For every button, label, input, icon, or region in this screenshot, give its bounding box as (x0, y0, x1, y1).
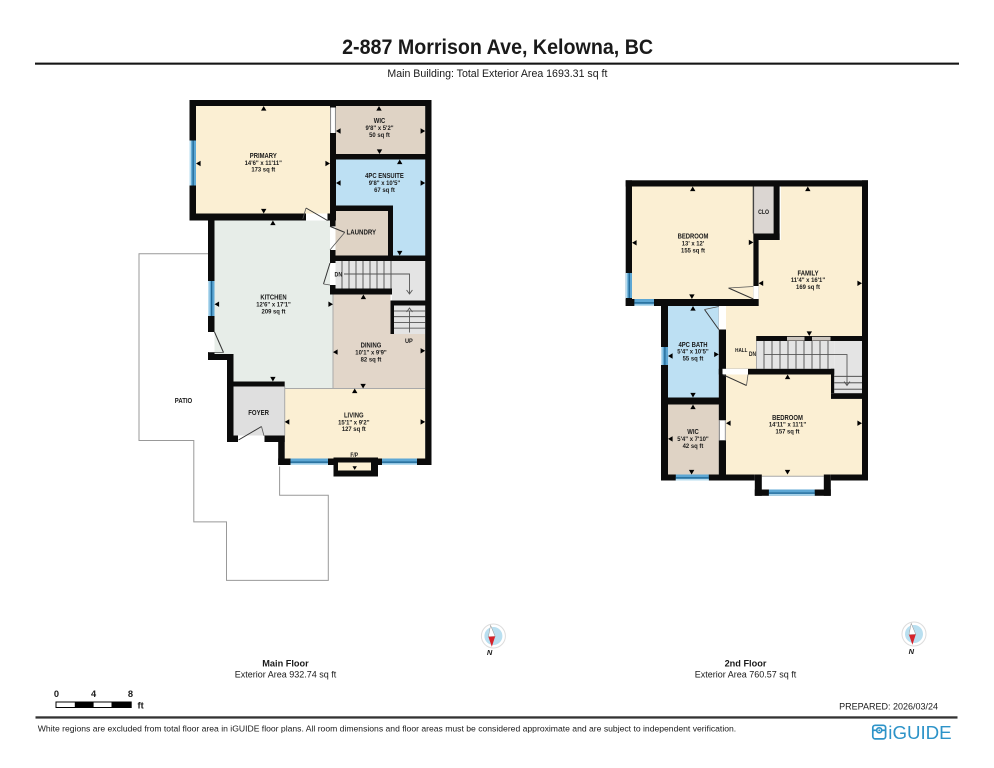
svg-text:169 sq ft: 169 sq ft (796, 284, 821, 291)
svg-text:127 sq ft: 127 sq ft (342, 426, 367, 433)
svg-text:Main Floor: Main Floor (262, 659, 309, 669)
svg-text:LIVING: LIVING (344, 410, 364, 419)
svg-text:BEDROOM: BEDROOM (678, 232, 709, 241)
svg-text:155 sq ft: 155 sq ft (681, 247, 706, 254)
svg-text:CLO: CLO (758, 209, 769, 216)
svg-text:2-887 Morrison Ave, Kelowna, B: 2-887 Morrison Ave, Kelowna, BC (342, 36, 653, 59)
svg-text:PRIMARY: PRIMARY (250, 151, 277, 160)
svg-text:White regions are excluded fro: White regions are excluded from total fl… (38, 724, 736, 734)
svg-text:209 sq ft: 209 sq ft (262, 308, 287, 315)
svg-text:PREPARED: 2026/03/24: PREPARED: 2026/03/24 (839, 702, 938, 712)
svg-text:LAUNDRY: LAUNDRY (347, 228, 377, 237)
svg-text:4: 4 (91, 689, 97, 699)
svg-text:UP: UP (405, 338, 413, 345)
svg-text:FOYER: FOYER (248, 408, 269, 417)
svg-text:ft: ft (138, 701, 144, 711)
svg-text:Exterior Area 932.74 sq ft: Exterior Area 932.74 sq ft (235, 670, 337, 680)
svg-text:PATIO: PATIO (175, 396, 193, 405)
svg-text:157 sq ft: 157 sq ft (776, 429, 801, 436)
svg-text:8: 8 (128, 689, 133, 699)
svg-text:4PC ENSUITE: 4PC ENSUITE (365, 171, 404, 180)
svg-text:55 sq ft: 55 sq ft (683, 356, 704, 363)
svg-text:HALL: HALL (735, 348, 748, 354)
svg-text:N: N (487, 648, 493, 657)
svg-text:50 sq ft: 50 sq ft (369, 132, 390, 139)
svg-text:DN: DN (749, 351, 757, 358)
svg-text:FAMILY: FAMILY (797, 268, 818, 277)
svg-text:82 sq ft: 82 sq ft (361, 356, 382, 363)
svg-text:Main Building: Total Exterior: Main Building: Total Exterior Area 1693.… (387, 68, 607, 80)
svg-text:DINING: DINING (361, 341, 382, 350)
svg-text:67 sq ft: 67 sq ft (374, 187, 395, 194)
svg-text:WIC: WIC (374, 116, 386, 125)
svg-text:Exterior Area 760.57 sq ft: Exterior Area 760.57 sq ft (695, 670, 797, 680)
svg-text:KITCHEN: KITCHEN (260, 293, 286, 302)
svg-text:42 sq ft: 42 sq ft (683, 443, 704, 450)
svg-text:4PC BATH: 4PC BATH (678, 340, 707, 349)
svg-text:BEDROOM: BEDROOM (772, 413, 803, 422)
svg-text:2nd Floor: 2nd Floor (725, 659, 767, 669)
svg-text:DN: DN (335, 271, 343, 278)
svg-text:WIC: WIC (687, 427, 699, 436)
svg-text:iGUIDE: iGUIDE (888, 722, 951, 743)
svg-text:173 sq ft: 173 sq ft (251, 167, 276, 174)
svg-text:F/P: F/P (350, 453, 358, 459)
svg-text:0: 0 (54, 689, 59, 699)
svg-text:N: N (909, 647, 915, 656)
